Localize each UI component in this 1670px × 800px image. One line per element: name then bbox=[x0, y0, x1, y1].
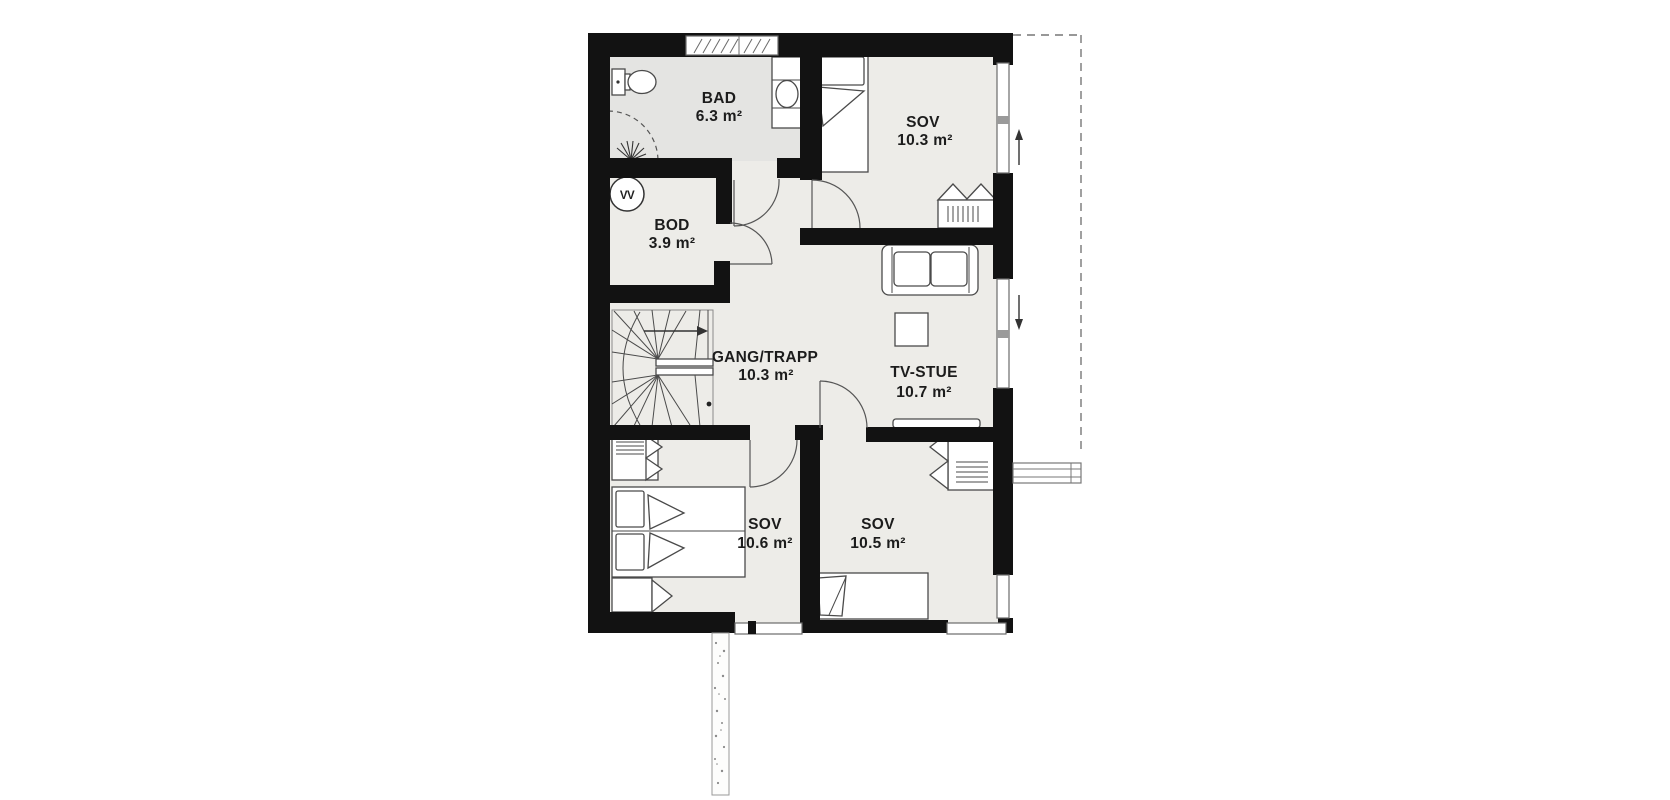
window-south-left-mullion bbox=[748, 621, 756, 634]
wall-east-low bbox=[993, 388, 1013, 575]
wardrobe-ne-body bbox=[938, 200, 996, 228]
stair-landing-rail bbox=[656, 359, 713, 366]
window-north bbox=[686, 36, 778, 55]
room-label-tvstue: TV-STUE bbox=[890, 364, 958, 381]
room-label-gang: GANG/TRAPP bbox=[712, 349, 818, 366]
room-label-bod: BOD bbox=[654, 217, 689, 234]
room-label-sov-ne: SOV bbox=[906, 114, 940, 131]
room-area-bad: 6.3 m² bbox=[696, 108, 743, 125]
wall-east-top bbox=[993, 33, 1013, 65]
window-arrow-down bbox=[1015, 295, 1023, 330]
room-area-bod: 3.9 m² bbox=[649, 235, 696, 252]
wall-west bbox=[588, 33, 610, 633]
room-label-sov-sw: SOV bbox=[748, 516, 782, 533]
single-bed-ne-pillow bbox=[819, 57, 864, 85]
stair-landing-rail2 bbox=[656, 368, 713, 375]
wall-sovne-south bbox=[800, 228, 997, 245]
toilet-bowl bbox=[628, 71, 656, 94]
wardrobe-ne-hatch bbox=[948, 206, 978, 222]
wall-tv bbox=[893, 419, 980, 428]
window-south-right bbox=[947, 623, 1006, 634]
window-east-upper-mullion bbox=[997, 116, 1009, 124]
room-area-sov-sw: 10.6 m² bbox=[737, 535, 793, 552]
window-east-mid-mullion bbox=[997, 330, 1009, 338]
water-heater-label: VV bbox=[620, 190, 635, 202]
toilet-button bbox=[616, 80, 619, 83]
balcony-beam bbox=[1013, 463, 1081, 483]
wall-east-mid bbox=[993, 173, 1013, 279]
wall-sovsw-north bbox=[588, 425, 750, 440]
dresser-sw bbox=[612, 578, 652, 612]
wall-sov-divider bbox=[800, 425, 820, 623]
single-bed-se-pillow bbox=[818, 576, 846, 616]
room-label-bad: BAD bbox=[702, 90, 736, 107]
wall-bad-south bbox=[610, 158, 720, 178]
side-table bbox=[895, 313, 928, 346]
double-bed-pillow-top bbox=[616, 491, 644, 527]
floorplan-canvas: VV bbox=[0, 0, 1670, 800]
room-area-sov-ne: 10.3 m² bbox=[897, 132, 953, 149]
water-heater: VV bbox=[610, 177, 644, 211]
wall-north bbox=[588, 33, 1013, 57]
window-south-left bbox=[735, 623, 802, 634]
sofa-cushion-left bbox=[894, 252, 930, 286]
double-bed-pillow-bottom bbox=[616, 534, 644, 570]
room-area-gang: 10.3 m² bbox=[738, 367, 794, 384]
room-area-sov-se: 10.5 m² bbox=[850, 535, 906, 552]
wall-south-mid bbox=[800, 620, 948, 633]
wall-tvstue-south bbox=[866, 427, 997, 442]
stair-newel-dot bbox=[707, 402, 712, 407]
wall-south-west bbox=[588, 612, 735, 633]
staircase bbox=[612, 310, 713, 427]
window-arrow-up bbox=[1015, 129, 1023, 165]
sink-basin bbox=[776, 81, 798, 108]
room-area-tvstue: 10.7 m² bbox=[896, 384, 952, 401]
foundation-strip bbox=[712, 633, 729, 795]
wall-bad-door-jamb bbox=[777, 158, 800, 178]
window-east-lower bbox=[997, 575, 1009, 618]
wall-stub-gang bbox=[716, 158, 732, 224]
sofa-cushion-right bbox=[931, 252, 967, 286]
room-label-sov-se: SOV bbox=[861, 516, 895, 533]
floor-plan-drawing: VV bbox=[0, 0, 1670, 800]
